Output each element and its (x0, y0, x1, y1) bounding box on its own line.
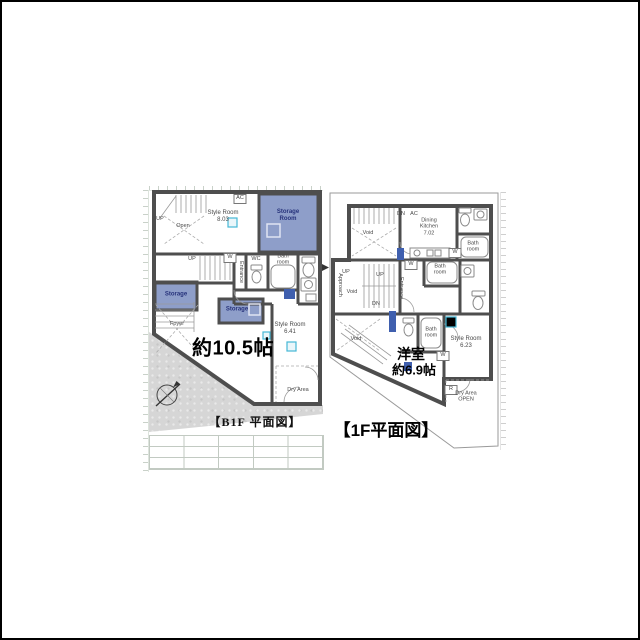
f1-r-box: R (445, 385, 458, 395)
floorplan-drawing (2, 2, 640, 640)
f1-kitchen-counter (410, 248, 450, 258)
cyan-fixture-icon (228, 218, 237, 227)
toilet-icon (251, 265, 262, 283)
f1-w-low-box: W (437, 351, 450, 361)
toilet-icon (459, 208, 471, 226)
compass-icon (156, 381, 180, 406)
bathtub-icon (461, 237, 488, 257)
cyan-fixture-icon (263, 332, 270, 339)
blue-fixture (389, 311, 396, 332)
toilet-icon (302, 257, 315, 277)
b1f-ac-box: AC (234, 194, 247, 204)
f1-w-mid-box: W (405, 260, 418, 270)
toilet-icon (403, 318, 414, 336)
f1-w-kitchen-box: W (449, 248, 462, 258)
washbasin-icon (461, 265, 474, 277)
cyan-fixture-icon (287, 342, 296, 351)
blue-fixture (284, 289, 295, 299)
bathtub-icon (421, 318, 441, 348)
floorplan-sheet: UP Open Style Room 8.03 AC Storage Room … (0, 0, 640, 640)
bathtub-icon (271, 265, 295, 288)
washbasin-icon (301, 278, 316, 291)
washbasin-icon (474, 209, 487, 220)
cyan-fixture-icon (446, 317, 456, 327)
blue-fixture (404, 362, 412, 371)
b1f-storage-left-fill (155, 282, 197, 310)
b1f-storage-room-fill (259, 194, 318, 252)
appliance-box (306, 294, 316, 301)
b1f-w-box: W (224, 253, 237, 263)
road-arrow-icon (322, 264, 329, 271)
blue-fixture (397, 248, 404, 260)
bathtub-icon (427, 262, 457, 283)
